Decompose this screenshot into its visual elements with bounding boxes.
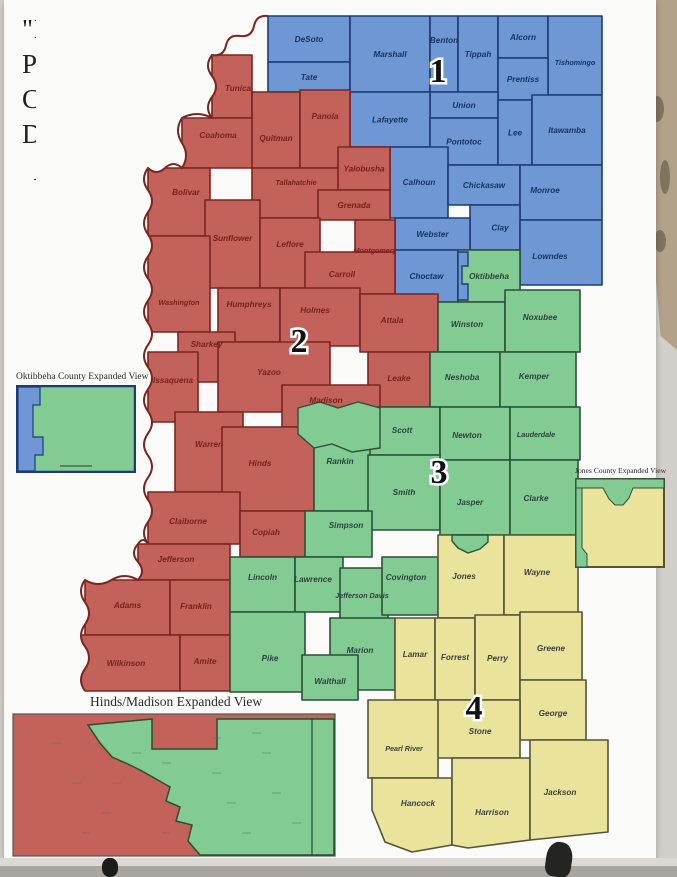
county-shape-pike <box>230 612 305 692</box>
inset-oktibbeha-title: Oktibbeha County Expanded View <box>16 372 149 382</box>
county-shape-lincoln <box>230 557 295 612</box>
county-label-madison: Madison <box>309 396 342 405</box>
county-label-issaquena: Issaquena <box>153 376 193 385</box>
inset-jones: Jones County Expanded View <box>575 466 666 573</box>
inset-oktibbeha-map <box>16 385 136 473</box>
county-label-montgomery: Montgomery <box>353 246 397 255</box>
county-label-lawrence: Lawrence <box>294 575 332 584</box>
county-label-yalobusha: Yalobusha <box>343 165 385 174</box>
county-shape-covington <box>382 557 438 615</box>
county-label-jones: Jones <box>452 572 476 581</box>
district-number-4: 4 <box>466 690 483 727</box>
district-number-1: 1 <box>430 53 447 90</box>
county-label-leake: Leake <box>387 374 411 383</box>
county-label-marshall: Marshall <box>373 50 407 59</box>
county-label-warren: Warren <box>195 440 223 449</box>
county-label-harrison: Harrison <box>475 808 509 817</box>
inset-jones-title: Jones County Expanded View <box>575 466 666 475</box>
county-label-humphreys: Humphreys <box>226 300 271 309</box>
county-label-monroe: Monroe <box>530 186 560 195</box>
inset-hinds-map <box>12 713 336 857</box>
county-label-forrest: Forrest <box>441 653 469 662</box>
county-label-choctaw: Choctaw <box>409 272 444 281</box>
county-label-lauderdale: Lauderdale <box>517 430 555 439</box>
county-label-hinds: Hinds <box>249 459 272 468</box>
county-label-grenada: Grenada <box>337 201 371 210</box>
county-shape-quitman <box>252 92 300 168</box>
county-label-prentiss: Prentiss <box>507 75 540 84</box>
county-label-lafayette: Lafayette <box>372 116 408 125</box>
county-shape-lawrence <box>295 557 343 612</box>
county-label-leflore: Leflore <box>276 240 304 249</box>
inset-oktibbeha: Oktibbeha County Expanded View <box>16 372 149 478</box>
county-label-greene: Greene <box>537 644 566 653</box>
county-label-george: George <box>539 709 568 718</box>
county-label-tishomingo: Tishomingo <box>555 58 596 67</box>
county-shape-simpson <box>305 511 372 557</box>
county-label-carroll: Carroll <box>329 270 356 279</box>
county-label-bolivar: Bolivar <box>172 188 201 197</box>
county-label-noxubee: Noxubee <box>523 313 558 322</box>
county-label-sunflower: Sunflower <box>213 234 253 243</box>
county-shape-bolivar <box>148 168 210 236</box>
county-label-newton: Newton <box>452 431 482 440</box>
county-shape-hancock <box>372 778 452 852</box>
county-label-tunica: Tunica <box>225 84 252 93</box>
county-label-calhoun: Calhoun <box>403 178 436 187</box>
county-label-neshoba: Neshoba <box>445 373 480 382</box>
county-shape-harrison <box>452 758 530 848</box>
county-label-alcorn: Alcorn <box>509 33 536 42</box>
county-label-lincoln: Lincoln <box>248 573 277 582</box>
county-label-wayne: Wayne <box>524 568 551 577</box>
county-label-jackson: Jackson <box>544 788 577 797</box>
county-label-amite: Amite <box>193 657 217 666</box>
county-label-smith: Smith <box>393 488 416 497</box>
county-label-washington: Washington <box>159 298 201 307</box>
county-label-sharkey: Sharkey <box>191 340 223 349</box>
county-label-jasper: Jasper <box>457 498 484 507</box>
county-label-holmes: Holmes <box>300 306 330 315</box>
county-label-desoto: DeSoto <box>295 35 324 44</box>
county-label-marion: Marion <box>347 646 374 655</box>
inset-jones-map <box>575 478 665 568</box>
county-label-pike: Pike <box>262 654 279 663</box>
county-label-walthall: Walthall <box>314 677 346 686</box>
county-label-tippah: Tippah <box>465 50 492 59</box>
county-label-chickasaw: Chickasaw <box>463 181 506 190</box>
county-shape-pearl-river <box>368 700 438 778</box>
county-label-scott: Scott <box>392 426 413 435</box>
county-label-adams: Adams <box>113 601 142 610</box>
county-label-perry: Perry <box>487 654 508 663</box>
county-label-stone: Stone <box>469 727 492 736</box>
county-label-rankin: Rankin <box>326 457 353 466</box>
inset-hinds-title: Hinds/Madison Expanded View <box>90 694 336 710</box>
county-label-yazoo: Yazoo <box>257 368 281 377</box>
county-label-webster: Webster <box>416 230 449 239</box>
county-label-wilkinson: Wilkinson <box>107 659 146 668</box>
county-label-coahoma: Coahoma <box>199 131 237 140</box>
county-label-tate: Tate <box>301 73 318 82</box>
district-number-2: 2 <box>291 323 308 360</box>
county-label-winston: Winston <box>451 320 483 329</box>
madison-south-green-area <box>298 402 380 452</box>
county-shape-tishomingo <box>548 16 602 95</box>
district-number-3: 3 <box>431 454 448 491</box>
county-label-jefferson-davis: Jefferson Davis <box>335 591 388 600</box>
county-label-oktibbeha: Oktibbeha <box>469 272 509 281</box>
county-label-claiborne: Claiborne <box>169 517 207 526</box>
county-label-lee: Lee <box>508 129 523 138</box>
dark-object-left <box>102 858 118 877</box>
county-label-union: Union <box>452 101 475 110</box>
county-label-jefferson: Jefferson <box>158 555 195 564</box>
county-label-pontotoc: Pontotoc <box>446 138 482 147</box>
county-label-lamar: Lamar <box>403 650 428 659</box>
county-label-copiah: Copiah <box>252 528 280 537</box>
county-label-clarke: Clarke <box>523 494 548 503</box>
county-label-kemper: Kemper <box>519 372 550 381</box>
county-label-lowndes: Lowndes <box>532 252 568 261</box>
county-label-tallahatchie: Tallahatchie <box>275 178 316 187</box>
county-label-clay: Clay <box>491 224 509 233</box>
county-label-hancock: Hancock <box>401 799 436 808</box>
county-label-pearl-river: Pearl River <box>385 744 424 753</box>
county-label-panola: Panola <box>312 112 339 121</box>
photo-background: "Magnolia1" Proposed Congressional Distr… <box>0 0 677 877</box>
county-shape-sunflower <box>205 200 260 288</box>
county-label-quitman: Quitman <box>259 134 292 143</box>
county-label-simpson: Simpson <box>329 521 364 530</box>
county-label-attala: Attala <box>380 316 404 325</box>
county-shape-lamar <box>395 618 435 700</box>
county-shape-washington <box>148 236 210 332</box>
county-label-franklin: Franklin <box>180 602 212 611</box>
county-label-covington: Covington <box>386 573 426 582</box>
county-label-itawamba: Itawamba <box>548 126 586 135</box>
county-shape-coahoma <box>182 118 254 168</box>
county-label-benton: Benton <box>430 36 458 45</box>
inset-hinds: Hinds/Madison Expanded View <box>12 694 336 862</box>
